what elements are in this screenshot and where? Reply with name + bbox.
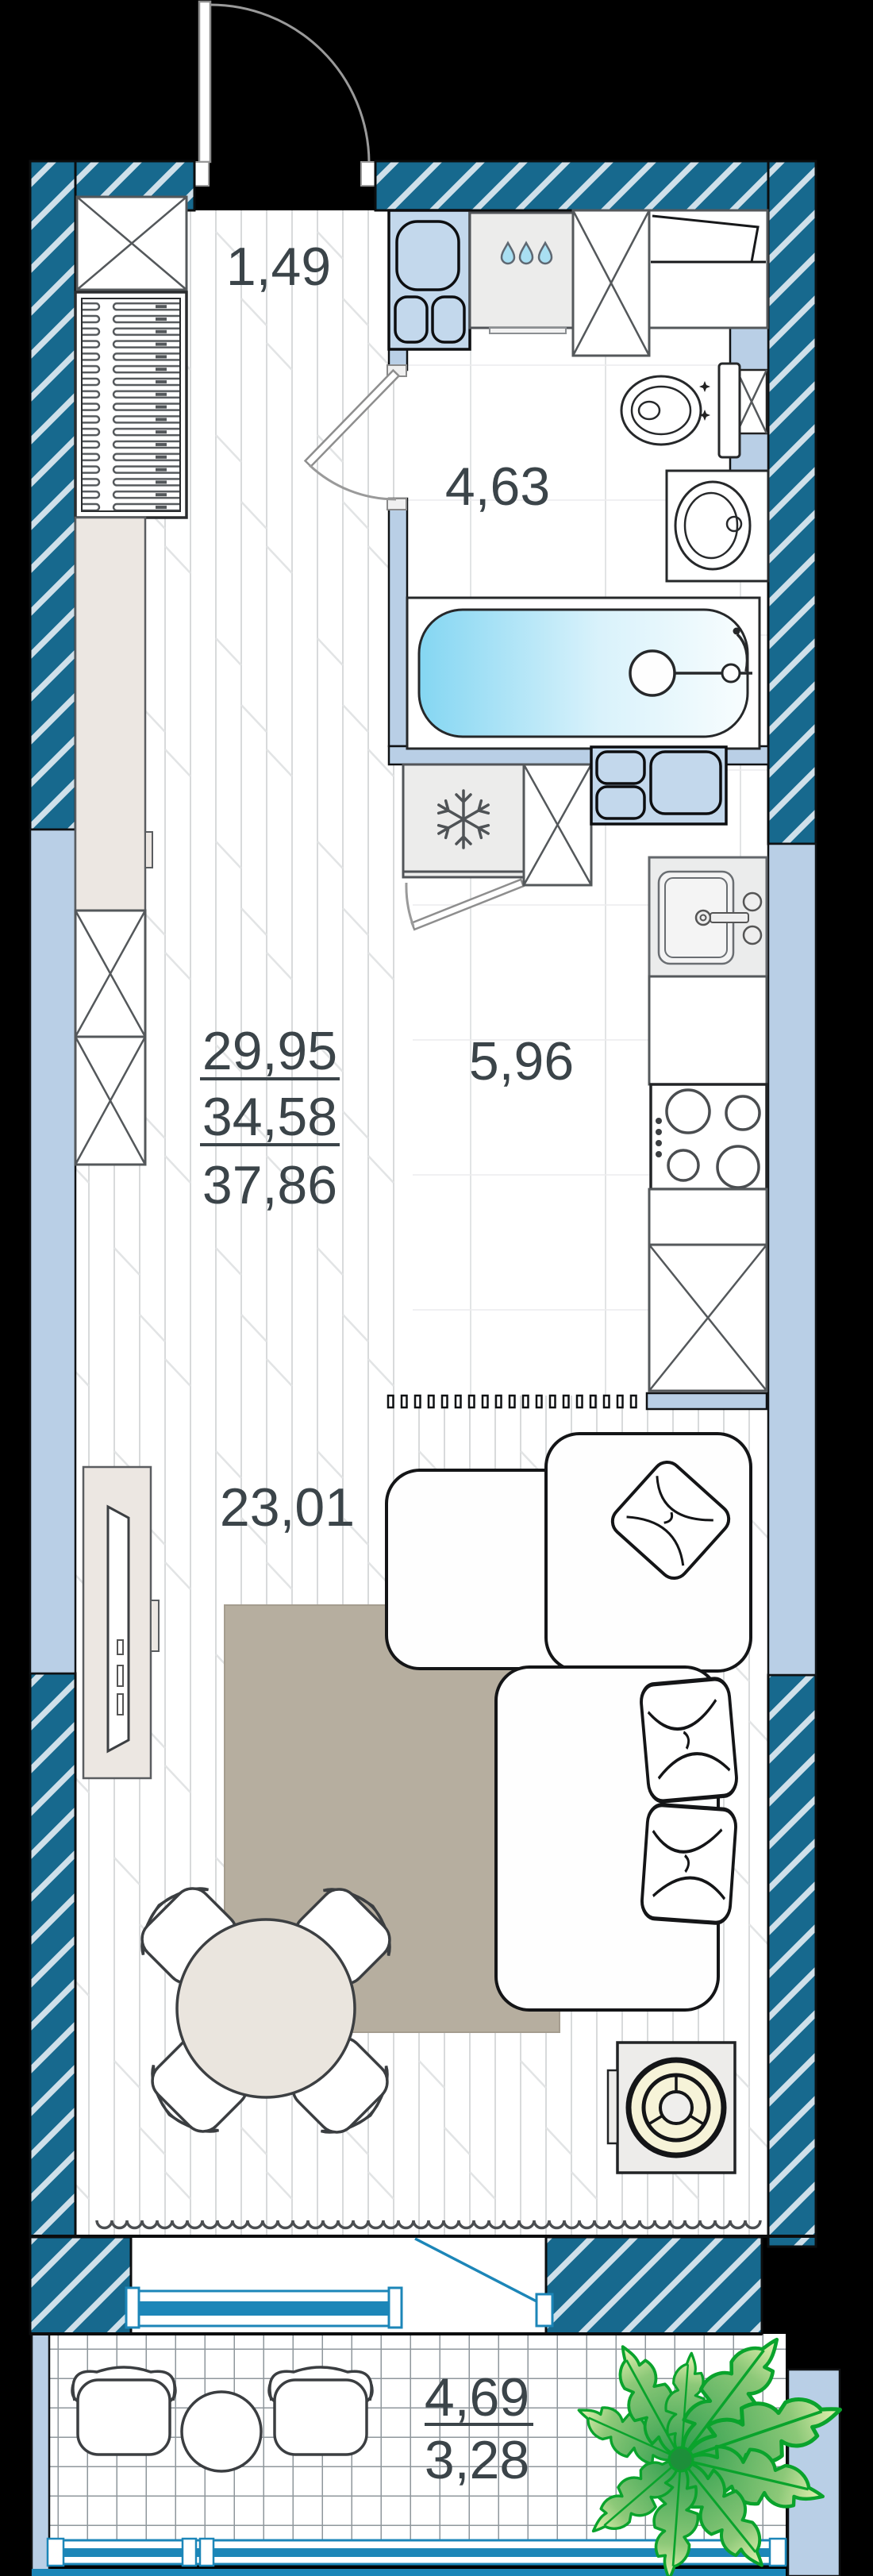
window-glass-bar xyxy=(137,2301,391,2316)
shoe-rack-slats-icon xyxy=(82,298,180,511)
balcony-chair-left xyxy=(72,2367,175,2455)
bathroom-area-label: 4,63 xyxy=(445,456,550,517)
wall-left-lower xyxy=(30,1673,75,2237)
stove-icon xyxy=(651,1084,767,1189)
balcony-wall-left xyxy=(32,2334,49,2576)
wall-right-upper xyxy=(768,161,816,844)
total-area-label-1: 29,95 xyxy=(202,1021,337,1081)
floor-plan-page: 1,49 4,63 29,95 34,58 37,86 5,96 23,01 4… xyxy=(0,0,873,2576)
shower-drops-icon xyxy=(502,243,552,264)
total-area-label-2: 34,58 xyxy=(202,1087,337,1147)
wall-balcony-left-pier xyxy=(30,2237,131,2334)
balcony-table xyxy=(182,2392,261,2471)
wall-right-lining xyxy=(768,844,816,1675)
balcony-door-jamb xyxy=(536,2294,552,2326)
shower-threshold xyxy=(490,328,566,333)
washer-pair-icon xyxy=(591,747,726,824)
bath-wall-left xyxy=(389,499,407,746)
washing-machine-icon xyxy=(608,2043,735,2173)
wall-top-right xyxy=(375,161,816,210)
entry-door-jamb-left xyxy=(194,162,209,186)
sofa-pillow-2-icon xyxy=(640,1678,738,1803)
shower-tray xyxy=(470,213,573,328)
wall-left-upper xyxy=(30,161,75,830)
wall-balcony-right-pier xyxy=(546,2237,762,2334)
tv-unit xyxy=(83,1467,159,1778)
living-area-label: 23,01 xyxy=(220,1477,355,1538)
wall-right-lower xyxy=(768,1675,816,2247)
entry-door-jamb-right xyxy=(361,162,375,186)
window-cap-left xyxy=(126,2288,139,2328)
water-heater-cabinet xyxy=(649,210,767,328)
glazing-post-2 xyxy=(183,2539,196,2566)
total-area-label-3: 37,86 xyxy=(202,1155,337,1215)
glazing-post-1 xyxy=(48,2539,63,2566)
hall-area-label: 1,49 xyxy=(226,237,331,297)
tv-bracket xyxy=(151,1600,159,1651)
dining-table xyxy=(177,1919,355,2097)
bathtub-icon xyxy=(407,598,760,749)
wardrobe-cabinet xyxy=(75,518,145,911)
kitchen-counter-1 xyxy=(649,976,767,1084)
glazing-post-3 xyxy=(200,2539,213,2566)
kitchen-counter-2 xyxy=(649,1189,767,1245)
kitchen-area-label: 5,96 xyxy=(469,1031,574,1092)
balcony-area-label-reduced: 3,28 xyxy=(425,2430,529,2490)
kitchen-wall-stub xyxy=(647,1393,767,1409)
kitchen-sink-icon xyxy=(649,857,767,976)
glazing-post-4 xyxy=(770,2539,786,2566)
sofa-pillow-3-icon xyxy=(640,1804,736,1924)
floor-plan-drawing: 1,49 4,63 29,95 34,58 37,86 5,96 23,01 4… xyxy=(0,0,873,2576)
balcony-area-label-full: 4,69 xyxy=(425,2367,529,2428)
wall-left-lining xyxy=(30,830,75,1673)
balcony-chair-right xyxy=(269,2367,372,2455)
wardrobe-handle-icon xyxy=(145,832,152,868)
entry-door-leaf xyxy=(199,2,210,162)
washbasin-icon xyxy=(667,471,768,581)
window-cap-right xyxy=(389,2288,402,2328)
